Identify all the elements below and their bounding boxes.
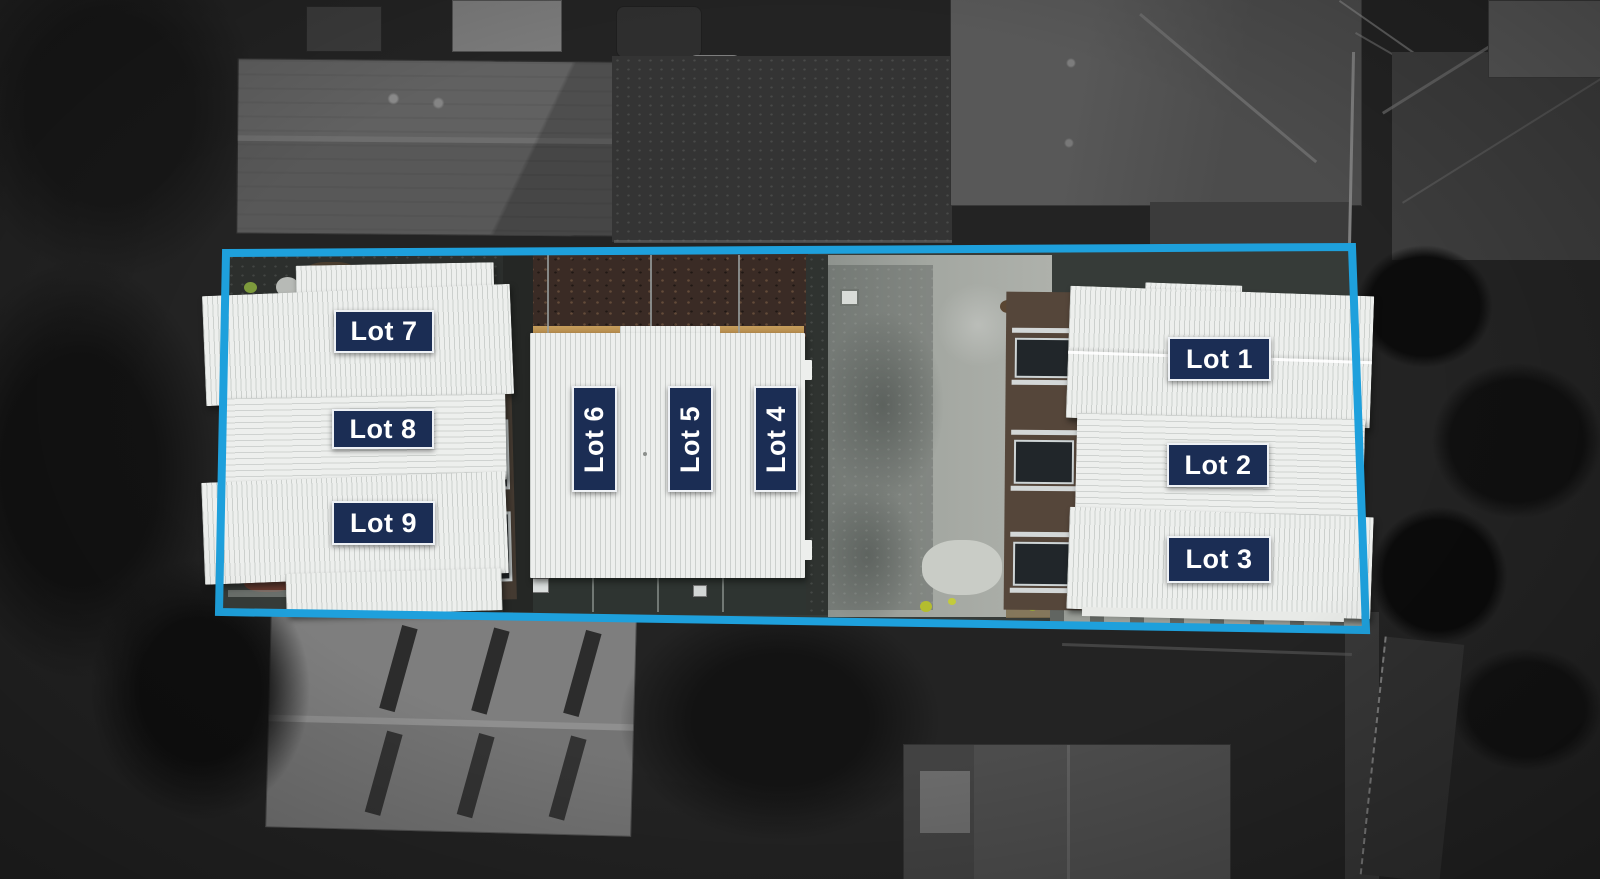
lot-5-label-text: Lot 5 (675, 406, 706, 473)
lot-1-label: Lot 1 (1168, 337, 1271, 381)
lot-3-label-text: Lot 3 (1186, 544, 1253, 575)
lot-2-label-text: Lot 2 (1185, 450, 1252, 481)
roof-vent-2 (643, 452, 647, 456)
lot-7-label: Lot 7 (334, 310, 434, 353)
roof-middle-tab-1 (803, 360, 812, 380)
townhouse-buildings (0, 0, 1600, 879)
lot-5-label: Lot 5 (668, 386, 713, 492)
lot-8-label: Lot 8 (332, 409, 434, 449)
aerial-site-photo: Lot 1 Lot 2 Lot 3 Lot 4 Lot 5 Lot 6 Lot … (0, 0, 1600, 879)
lot-6-label-text: Lot 6 (579, 406, 610, 473)
roof-lot-9-lower (285, 568, 502, 616)
lot-7-label-text: Lot 7 (351, 316, 418, 347)
lot-4-label-text: Lot 4 (761, 406, 792, 473)
lot-3-label: Lot 3 (1167, 536, 1271, 583)
lot-9-label: Lot 9 (332, 501, 435, 545)
roof-middle-tab-2 (803, 540, 812, 560)
lot-6-label: Lot 6 (572, 386, 617, 492)
lot-8-label-text: Lot 8 (350, 414, 417, 445)
lot-2-label: Lot 2 (1167, 443, 1269, 487)
lot-1-label-text: Lot 1 (1186, 344, 1253, 375)
lot-4-label: Lot 4 (754, 386, 798, 492)
lot-9-label-text: Lot 9 (350, 508, 417, 539)
